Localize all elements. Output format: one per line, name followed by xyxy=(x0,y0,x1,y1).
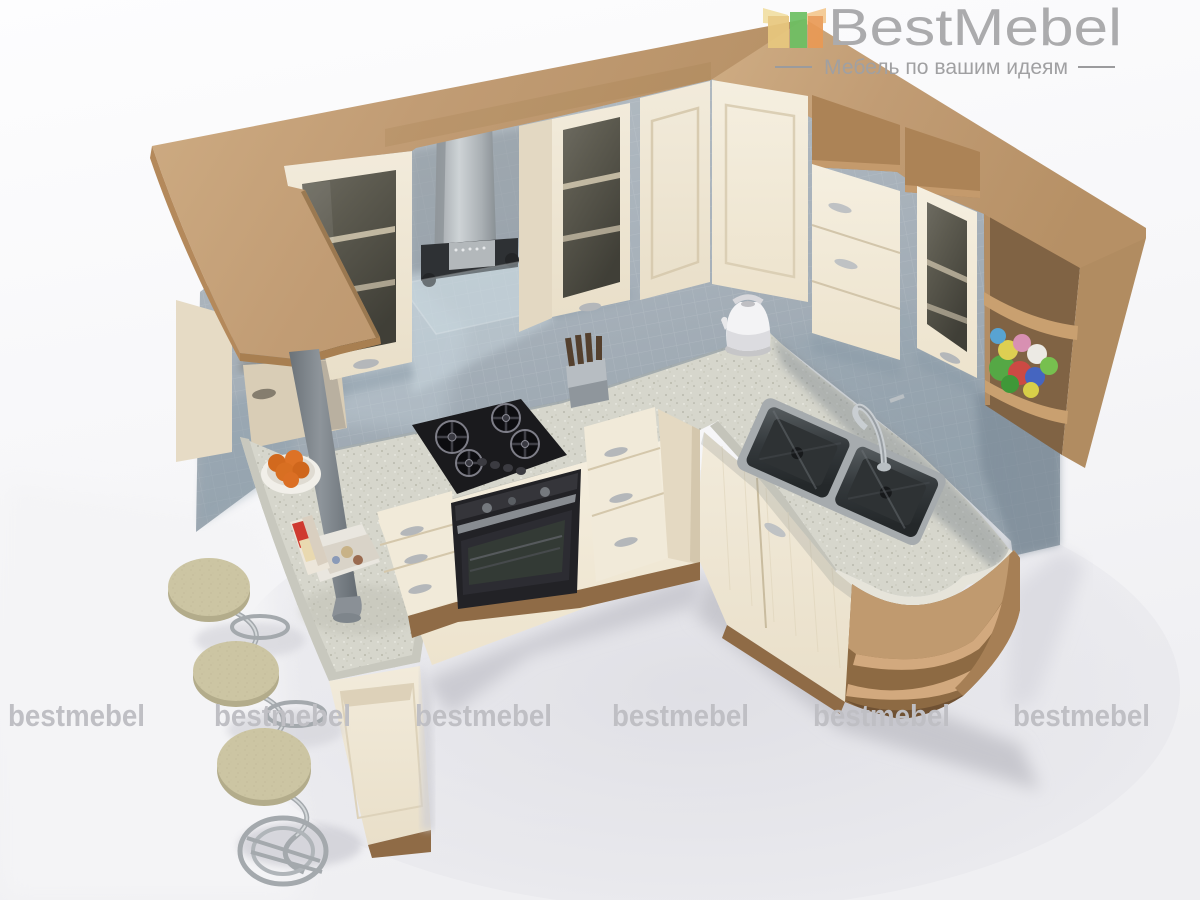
svg-text:bestmebel: bestmebel xyxy=(214,698,351,733)
svg-text:bestmebel: bestmebel xyxy=(612,698,749,733)
svg-text:bestmebel: bestmebel xyxy=(1013,698,1150,733)
svg-text:Мебель по вашим идеям: Мебель по вашим идеям xyxy=(824,55,1068,79)
svg-text:bestmebel: bestmebel xyxy=(813,698,950,733)
svg-text:bestmebel: bestmebel xyxy=(415,698,552,733)
svg-text:bestmebel: bestmebel xyxy=(8,698,145,733)
svg-text:BestMebel: BestMebel xyxy=(828,0,1122,57)
